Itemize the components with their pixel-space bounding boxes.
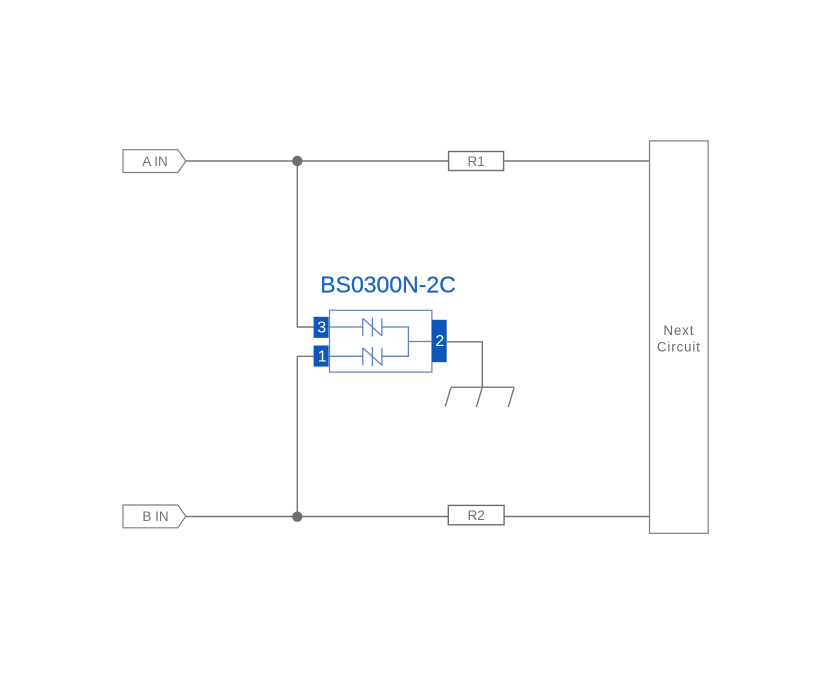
svg-text:R1: R1 (467, 154, 484, 169)
svg-text:A IN: A IN (142, 154, 168, 169)
svg-text:R2: R2 (468, 508, 485, 523)
svg-text:B IN: B IN (142, 509, 168, 524)
svg-text:Next: Next (663, 323, 694, 338)
svg-text:Circuit: Circuit (657, 340, 701, 355)
svg-text:1: 1 (318, 348, 327, 365)
svg-text:2: 2 (435, 333, 444, 350)
svg-text:BS0300N-2C: BS0300N-2C (320, 272, 456, 298)
svg-text:3: 3 (317, 320, 326, 337)
